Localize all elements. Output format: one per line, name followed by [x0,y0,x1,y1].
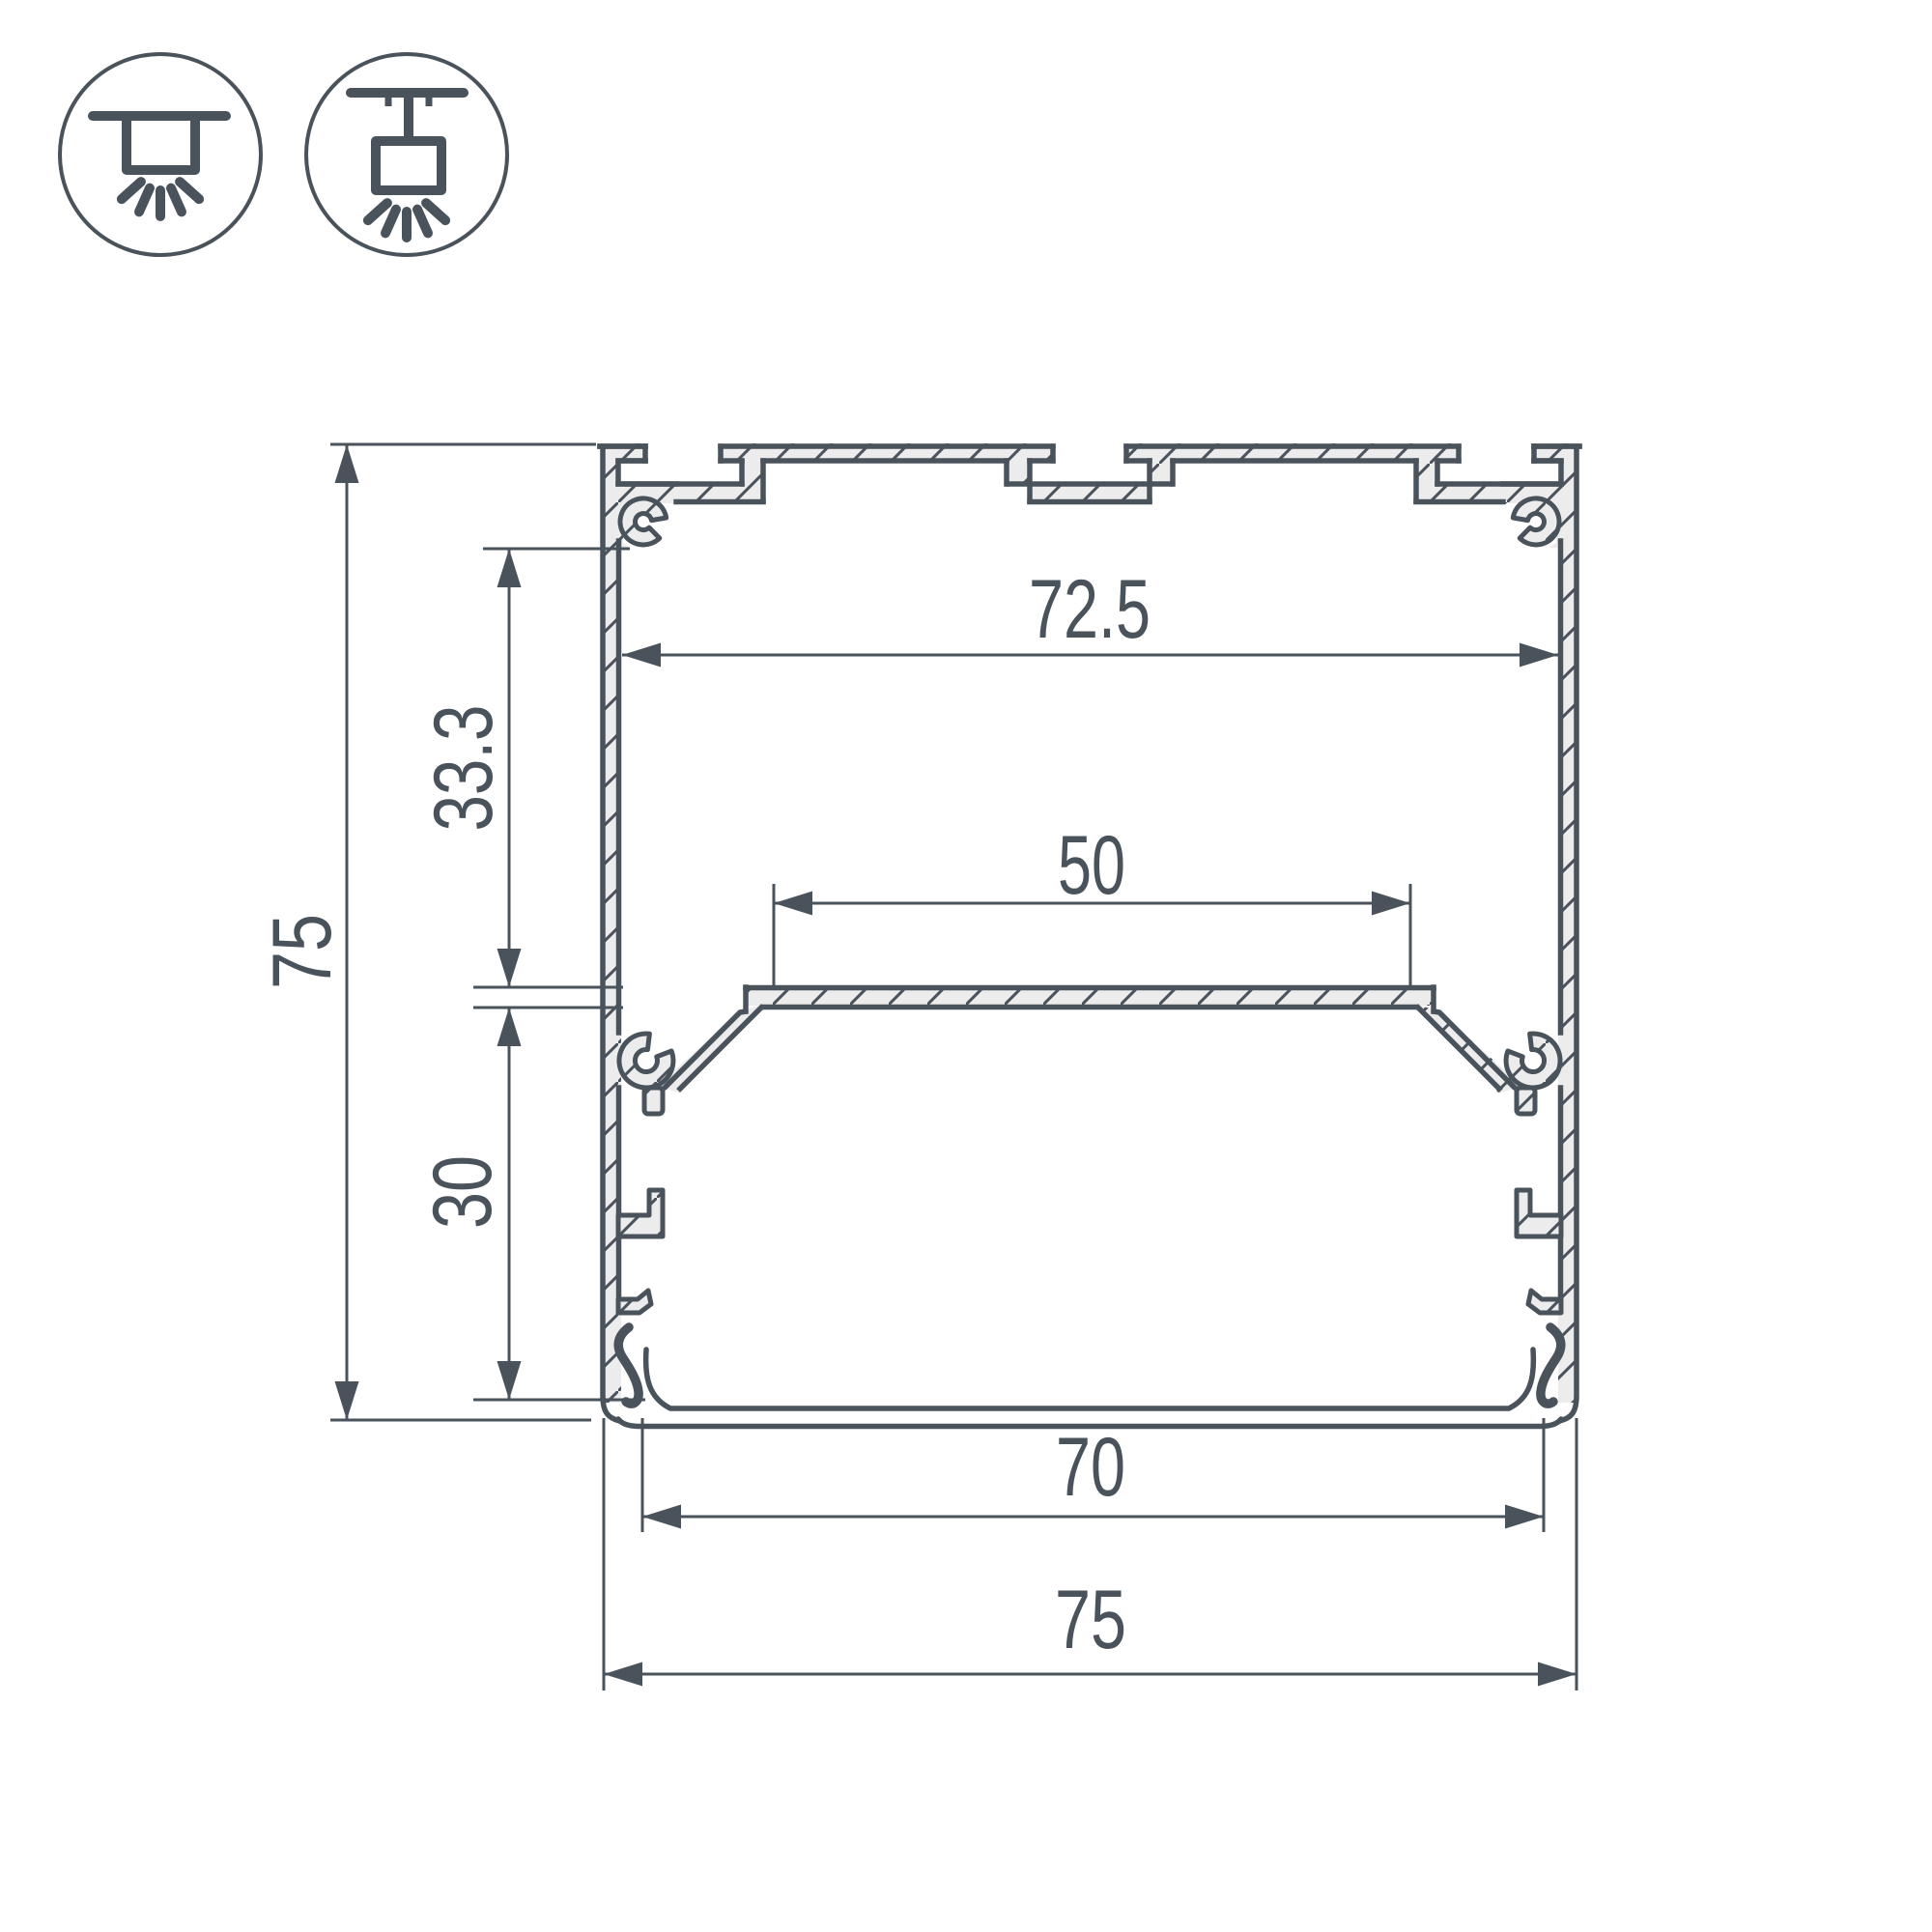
svg-text:70: 70 [1056,1421,1125,1514]
svg-text:75: 75 [1055,1574,1126,1666]
svg-text:33.3: 33.3 [417,705,510,832]
svg-text:50: 50 [1058,819,1125,912]
svg-text:30: 30 [416,1155,509,1229]
svg-text:72.5: 72.5 [1029,563,1151,656]
svg-text:75: 75 [256,914,349,989]
